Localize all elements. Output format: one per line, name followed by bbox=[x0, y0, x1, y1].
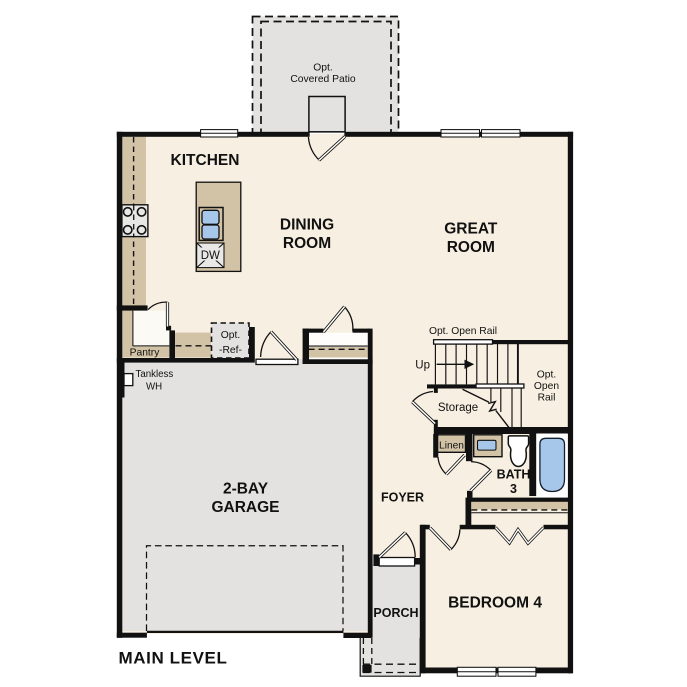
svg-text:Opt.: Opt. bbox=[537, 370, 556, 381]
svg-text:Open: Open bbox=[534, 381, 559, 392]
svg-text:WH: WH bbox=[146, 382, 162, 393]
svg-text:DINING: DINING bbox=[280, 217, 334, 234]
svg-text:ROOM: ROOM bbox=[447, 239, 495, 256]
svg-text:2-BAY: 2-BAY bbox=[223, 481, 269, 498]
svg-text:Rail: Rail bbox=[538, 393, 556, 404]
svg-text:ROOM: ROOM bbox=[283, 235, 331, 252]
svg-text:Opt.: Opt. bbox=[313, 63, 332, 74]
svg-text:Opt. Open Rail: Opt. Open Rail bbox=[429, 326, 497, 337]
svg-text:Tankless: Tankless bbox=[136, 369, 174, 380]
svg-text:Storage: Storage bbox=[438, 402, 478, 414]
svg-text:Opt.: Opt. bbox=[221, 330, 240, 341]
svg-text:-Ref-: -Ref- bbox=[219, 345, 242, 356]
svg-text:DW: DW bbox=[201, 250, 220, 262]
svg-text:KITCHEN: KITCHEN bbox=[171, 152, 240, 169]
svg-text:MAIN LEVEL: MAIN LEVEL bbox=[119, 649, 228, 668]
svg-text:GARAGE: GARAGE bbox=[211, 499, 279, 516]
svg-text:3: 3 bbox=[510, 482, 517, 496]
svg-text:PORCH: PORCH bbox=[373, 606, 418, 620]
svg-text:Linen: Linen bbox=[439, 441, 464, 452]
svg-text:BATH: BATH bbox=[497, 468, 531, 482]
svg-text:FOYER: FOYER bbox=[381, 491, 424, 505]
svg-text:GREAT: GREAT bbox=[444, 221, 498, 238]
svg-text:Pantry: Pantry bbox=[130, 348, 161, 359]
svg-text:BEDROOM 4: BEDROOM 4 bbox=[448, 595, 542, 612]
svg-text:Covered Patio: Covered Patio bbox=[290, 74, 356, 85]
svg-text:Up: Up bbox=[415, 360, 430, 372]
